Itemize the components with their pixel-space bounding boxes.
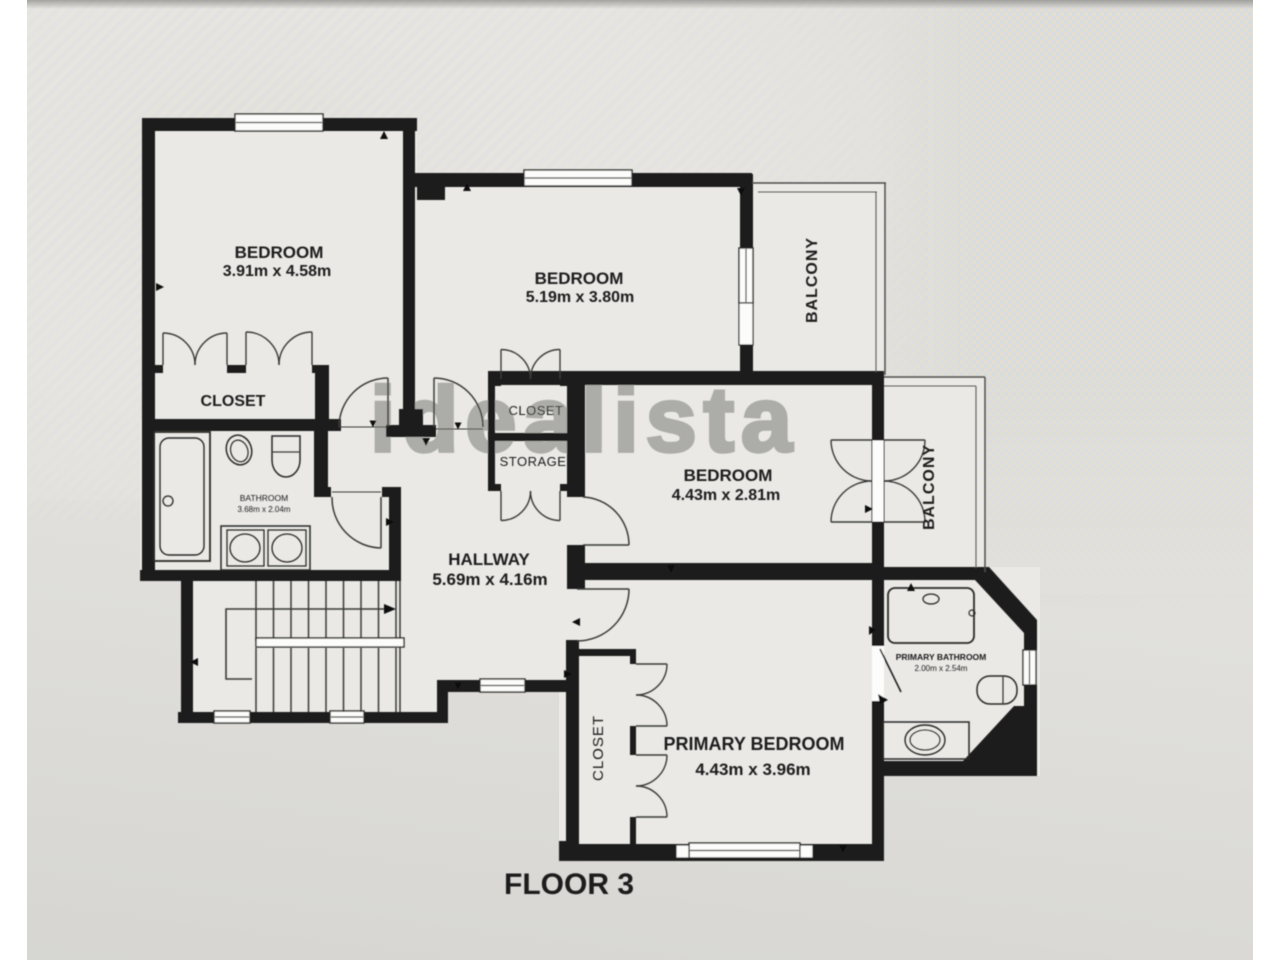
svg-text:PRIMARY BEDROOM: PRIMARY BEDROOM: [663, 734, 844, 754]
svg-text:CLOSET: CLOSET: [201, 393, 266, 410]
svg-text:4.43m x 3.96m: 4.43m x 3.96m: [695, 760, 810, 779]
svg-text:BALCONY: BALCONY: [804, 237, 821, 323]
svg-text:2.00m x 2.54m: 2.00m x 2.54m: [915, 664, 968, 673]
svg-text:BEDROOM: BEDROOM: [684, 466, 773, 485]
svg-text:STORAGE: STORAGE: [500, 454, 567, 469]
svg-text:3.68m x 2.04m: 3.68m x 2.04m: [238, 505, 291, 514]
svg-text:3.91m x 4.58m: 3.91m x 4.58m: [223, 263, 332, 280]
svg-text:PRIMARY BATHROOM: PRIMARY BATHROOM: [896, 652, 987, 662]
svg-text:FLOOR 3: FLOOR 3: [504, 868, 634, 901]
svg-text:BATHROOM: BATHROOM: [240, 493, 288, 503]
svg-text:HALLWAY: HALLWAY: [448, 550, 530, 569]
svg-text:5.19m x 3.80m: 5.19m x 3.80m: [526, 289, 635, 306]
svg-text:BEDROOM: BEDROOM: [235, 243, 324, 262]
svg-text:5.69m x 4.16m: 5.69m x 4.16m: [432, 570, 547, 589]
svg-text:CLOSET: CLOSET: [590, 715, 607, 781]
svg-text:BALCONY: BALCONY: [921, 444, 938, 530]
svg-text:BEDROOM: BEDROOM: [535, 269, 624, 288]
svg-text:4.43m x 2.81m: 4.43m x 2.81m: [672, 487, 781, 504]
svg-text:CLOSET: CLOSET: [508, 403, 563, 418]
